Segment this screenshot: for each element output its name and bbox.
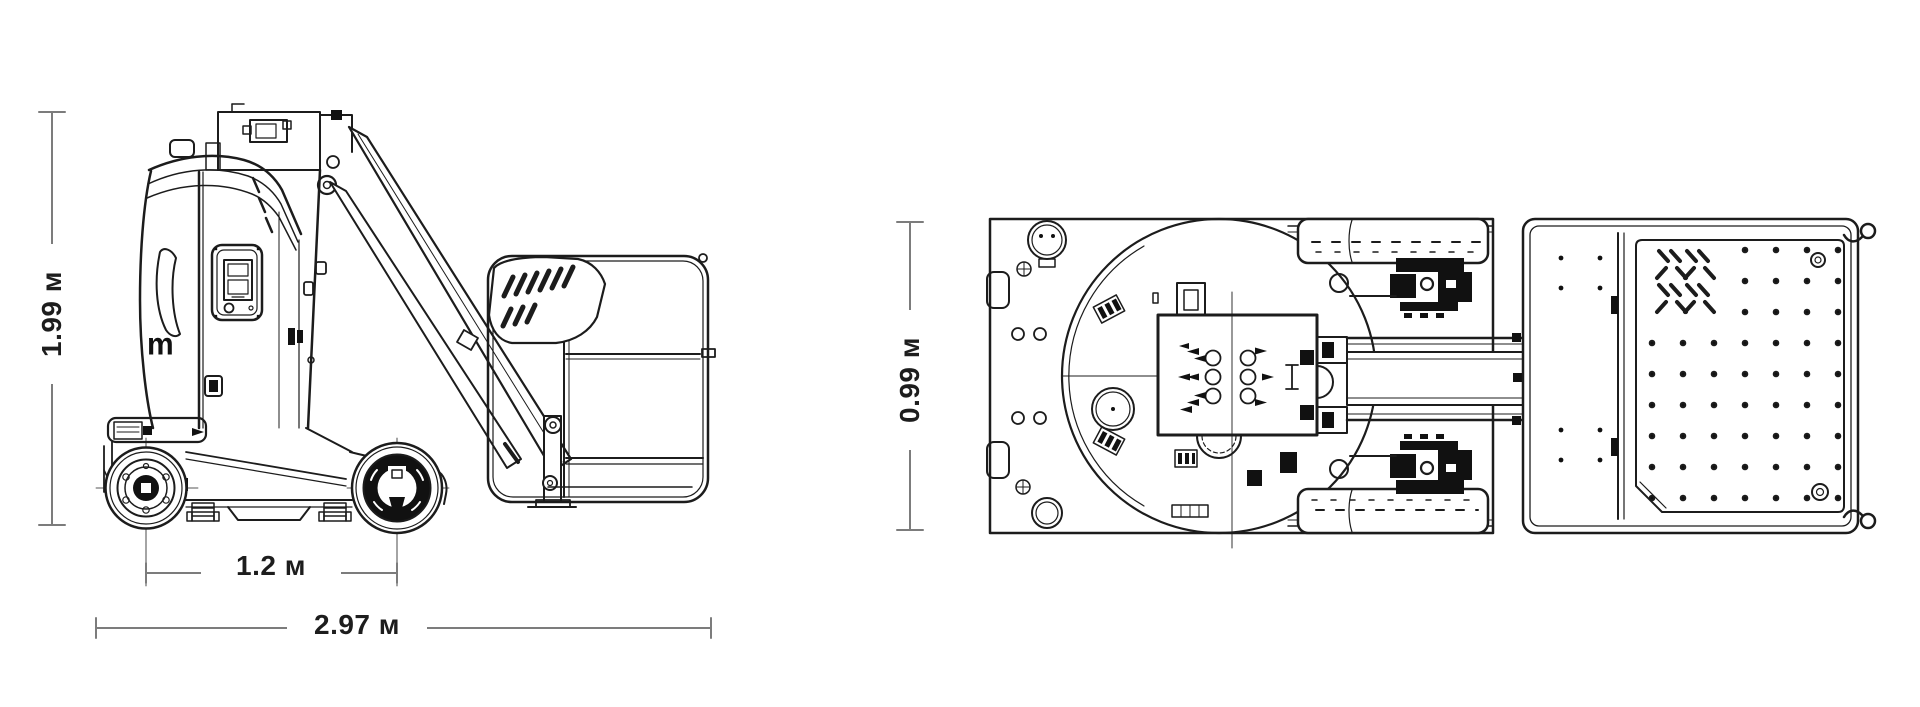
drive-assembly-bottom <box>1350 434 1472 494</box>
dimension-label-width: 0.99 м <box>893 310 927 450</box>
side-view <box>96 104 715 586</box>
machine-body <box>140 140 326 428</box>
top-platform <box>1523 219 1875 533</box>
mast-head <box>206 104 320 170</box>
drive-assembly-top <box>1350 258 1472 318</box>
top-view <box>987 219 1875 548</box>
technical-drawing <box>0 0 1920 707</box>
dimension-label-height: 1.99 м <box>35 244 69 384</box>
boom-anchor <box>318 110 352 194</box>
platform-basket <box>488 254 715 502</box>
dimension-label-length: 2.97 м <box>287 608 427 642</box>
dimension-lines <box>39 112 923 638</box>
drawing-canvas: 1.99 м 1.2 м 2.97 м 0.99 м m <box>0 0 1920 707</box>
dimension-label-wheelbase: 1.2 м <box>201 549 341 583</box>
logo-fragment: m <box>147 327 174 363</box>
